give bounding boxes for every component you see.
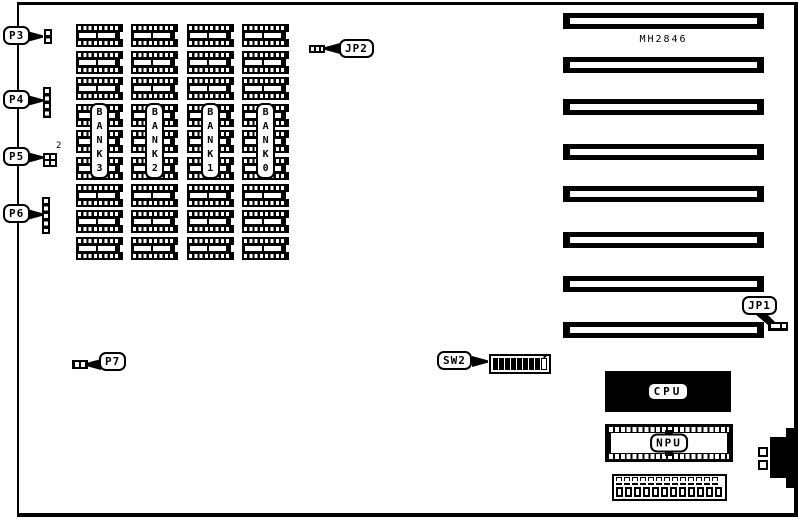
- square-pin: [652, 487, 659, 497]
- board-edge-left: [17, 2, 19, 514]
- jp2-jumper: [309, 45, 325, 53]
- bank-1-label: B A N K 1: [201, 103, 220, 179]
- ram-chip: [76, 184, 123, 207]
- ram-column-bank-0: B A N K 0: [242, 24, 289, 262]
- staple-pin-row: [614, 477, 725, 481]
- isa-slot-2: [563, 57, 764, 73]
- ram-bank-area: B A N K 3B A N K 2B A N K 1B A N K 0: [76, 24, 290, 262]
- ram-column-bank-1: B A N K 1: [187, 24, 234, 262]
- dip-switch-cell-filled: [523, 358, 528, 370]
- board-model-text: MH2846: [563, 34, 764, 45]
- ram-chip: [242, 51, 289, 74]
- dash-mark: [632, 483, 638, 485]
- ram-column-bank-2: B A N K 2: [131, 24, 178, 262]
- board-edge-bottom: [17, 513, 798, 517]
- keyboard-connector-pin-bottom: [758, 460, 768, 470]
- staple-pin: [632, 477, 638, 481]
- dash-mark: [688, 483, 694, 485]
- sw2-dip-switch: [489, 354, 551, 374]
- jp2-label: JP2: [339, 39, 374, 58]
- square-pin: [697, 487, 704, 497]
- ram-chip: [242, 184, 289, 207]
- p4-label: P4: [3, 90, 30, 109]
- sw2-label: SW2: [437, 351, 472, 370]
- p5-jumper-block: [43, 153, 57, 167]
- isa-slot-5: [563, 186, 764, 202]
- npu-socket: NPU: [605, 424, 733, 462]
- ram-chip: [131, 51, 178, 74]
- isa-slot-8: [563, 322, 764, 338]
- cpu-label: CPU: [649, 384, 688, 399]
- motherboard-diagram: B A N K 3B A N K 2B A N K 1B A N K 0 MH2…: [0, 0, 799, 520]
- ram-chip: [131, 24, 178, 47]
- square-pin-row: [614, 487, 725, 497]
- cpu-chip: CPU: [605, 371, 731, 412]
- ram-chip: [187, 51, 234, 74]
- dash-mark: [624, 483, 630, 485]
- sw2-pointer: [472, 356, 488, 367]
- ram-column-bank-3: B A N K 3: [76, 24, 123, 262]
- keyboard-connector-inner: [770, 437, 786, 478]
- square-pin: [679, 487, 686, 497]
- dash-mark: [616, 483, 622, 485]
- square-pin: [643, 487, 650, 497]
- jp2-pointer: [324, 43, 340, 54]
- square-pin: [625, 487, 632, 497]
- ram-chip: [242, 210, 289, 233]
- ram-chip: [131, 77, 178, 100]
- ram-chip: [76, 24, 123, 47]
- ram-chip: [76, 237, 123, 260]
- dash-row: [614, 483, 725, 485]
- staple-pin: [640, 477, 646, 481]
- staple-pin: [624, 477, 630, 481]
- isa-slot-4: [563, 144, 764, 160]
- staple-pin: [696, 477, 702, 481]
- dip-switch-cell-filled: [493, 358, 498, 370]
- ram-chip: [187, 77, 234, 100]
- keyboard-connector-outer: [786, 428, 798, 488]
- dash-mark: [672, 483, 678, 485]
- ram-chip: [131, 210, 178, 233]
- p4-connector: [43, 87, 51, 118]
- isa-slot-area: [563, 0, 764, 340]
- ram-chip: [187, 210, 234, 233]
- dash-mark: [704, 483, 710, 485]
- dash-mark: [696, 483, 702, 485]
- staple-pin: [616, 477, 622, 481]
- isa-slot-6: [563, 232, 764, 248]
- dash-mark: [640, 483, 646, 485]
- dip-switch-cell-filled: [535, 358, 540, 370]
- dash-mark: [656, 483, 662, 485]
- p7-label: P7: [99, 352, 126, 371]
- square-pin: [670, 487, 677, 497]
- p3-label: P3: [3, 26, 30, 45]
- p5-label: P5: [3, 147, 30, 166]
- keyboard-connector-pin-top: [758, 447, 768, 457]
- dip-switch-cell-filled: [517, 358, 522, 370]
- staple-pin: [688, 477, 694, 481]
- p5-pin2-marker: 2: [56, 142, 61, 151]
- staple-pin: [680, 477, 686, 481]
- dip-switch-cell-filled: [529, 358, 534, 370]
- ram-chip: [131, 237, 178, 260]
- staple-pin: [704, 477, 710, 481]
- staple-pin: [648, 477, 654, 481]
- dip-switch-cell-filled: [511, 358, 516, 370]
- dip-switch-cell-filled: [505, 358, 510, 370]
- dash-mark: [648, 483, 654, 485]
- isa-slot-3: [563, 99, 764, 115]
- dash-mark: [680, 483, 686, 485]
- p6-label: P6: [3, 204, 30, 223]
- ram-chip: [76, 51, 123, 74]
- pin-header-connector: [612, 474, 727, 501]
- dip-switch-cell-open: [541, 358, 547, 370]
- bank-3-label: B A N K 3: [90, 103, 109, 179]
- square-pin: [715, 487, 722, 497]
- square-pin: [634, 487, 641, 497]
- npu-label: NPU: [650, 434, 688, 453]
- ram-chip: [76, 77, 123, 100]
- p3-connector: [44, 29, 52, 44]
- ram-chip: [187, 24, 234, 47]
- ram-chip: [187, 237, 234, 260]
- isa-slot-1: [563, 13, 764, 29]
- jp1-label: JP1: [742, 296, 777, 315]
- square-pin: [706, 487, 713, 497]
- ram-chip: [187, 184, 234, 207]
- staple-pin: [672, 477, 678, 481]
- ram-chip: [76, 210, 123, 233]
- staple-pin: [712, 477, 718, 481]
- isa-slot-7: [563, 276, 764, 292]
- bank-2-label: B A N K 2: [145, 103, 164, 179]
- dash-mark: [664, 483, 670, 485]
- bank-0-label: B A N K 0: [256, 103, 275, 179]
- p6-connector: [42, 197, 50, 234]
- jp1-jumper: [768, 322, 788, 331]
- dip-switch-cell-filled: [499, 358, 504, 370]
- square-pin: [661, 487, 668, 497]
- staple-pin: [664, 477, 670, 481]
- square-pin: [688, 487, 695, 497]
- square-pin: [616, 487, 623, 497]
- staple-pin: [656, 477, 662, 481]
- ram-chip: [242, 77, 289, 100]
- ram-chip: [242, 237, 289, 260]
- ram-chip: [242, 24, 289, 47]
- ram-chip: [131, 184, 178, 207]
- dash-mark: [712, 483, 718, 485]
